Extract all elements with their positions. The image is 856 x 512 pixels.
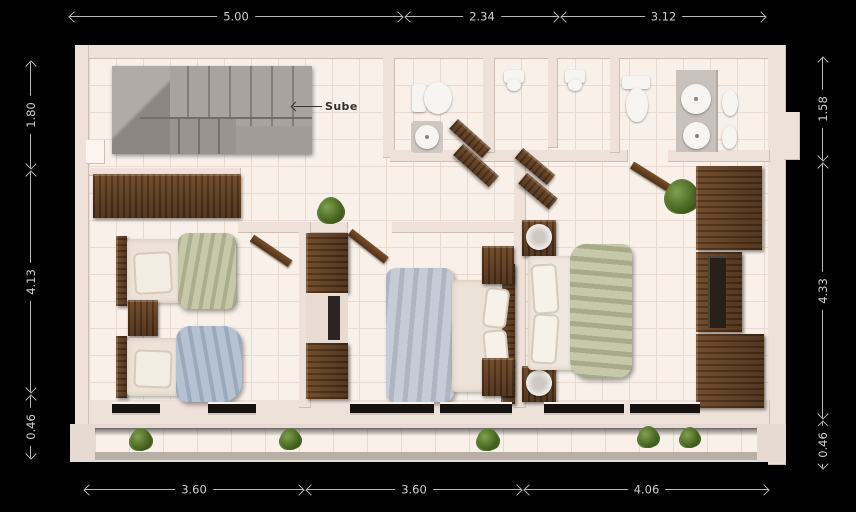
- blanket-twin-1: [178, 233, 236, 309]
- plant-balcony-3: [477, 429, 499, 451]
- plant-hallway: [318, 198, 344, 224]
- blanket-twin-2: [176, 326, 242, 402]
- stairs-arrow-icon: [294, 106, 322, 107]
- toilet-bowl: [424, 82, 452, 114]
- wall-bath-part-1: [483, 58, 495, 153]
- wall-right-jog: [784, 112, 800, 160]
- blanket-master: [570, 244, 632, 378]
- window-bed3-b: [630, 402, 700, 415]
- plant-balcony-4: [638, 427, 659, 448]
- pillow-master-2: [530, 313, 559, 365]
- staircase: [112, 66, 312, 154]
- wall-bath-part-2: [548, 58, 558, 148]
- plant-balcony-5: [680, 428, 700, 448]
- dim-bottom-1: 3.60: [85, 489, 303, 490]
- dim-right-2: 4.33: [822, 164, 823, 418]
- dim-right-1: 1.58: [822, 58, 823, 160]
- dim-label: 3.12: [645, 9, 683, 23]
- sink-drain: [425, 135, 429, 139]
- vanity-drain-2: [695, 134, 699, 138]
- headboard-twin-2: [116, 336, 127, 398]
- dim-label: 4.06: [628, 482, 666, 496]
- pillow-master-1: [530, 263, 559, 315]
- wall-stair-right: [383, 58, 395, 158]
- dim-label: 3.60: [175, 482, 213, 496]
- wardrobe-mid-recess: [306, 293, 348, 343]
- stairs-direction-label: Sube: [325, 100, 358, 113]
- stair-landing: [112, 66, 170, 154]
- wall-basin-2: [722, 126, 737, 149]
- vanity-drain-1: [694, 97, 698, 101]
- dim-bottom-3: 4.06: [525, 489, 768, 490]
- duvet-mid-bed: [386, 268, 454, 402]
- wall-right: [768, 45, 786, 465]
- pillow-twin-2: [133, 349, 172, 388]
- dim-label: 0.46: [24, 408, 38, 446]
- stall-basin-2: [568, 79, 582, 91]
- wall-top: [75, 45, 785, 59]
- dim-left-3: 0.46: [30, 396, 31, 458]
- dim-top-3: 3.12: [562, 16, 765, 17]
- dim-label: 4.13: [24, 263, 38, 301]
- window-bed2-b: [440, 402, 512, 415]
- wardrobe-mid-bottom: [306, 343, 348, 399]
- dim-label: 3.60: [395, 482, 433, 496]
- stair-divider: [140, 117, 312, 119]
- tv-slot-master: [708, 256, 726, 328]
- dim-top-2: 2.34: [406, 16, 558, 17]
- plant-balcony-2: [280, 429, 301, 450]
- toilet-bowl-3: [626, 88, 648, 122]
- nightstand-mid-top: [482, 246, 514, 284]
- dim-label: 4.33: [816, 272, 830, 310]
- window-bed1-a: [112, 402, 160, 415]
- dim-left-2: 4.13: [30, 172, 31, 392]
- dim-label: 2.34: [463, 9, 501, 23]
- dim-label: 1.58: [816, 90, 830, 128]
- lamp-master-top: [526, 224, 552, 250]
- tv-slot-mid: [328, 296, 340, 340]
- plant-balcony-1: [130, 429, 152, 451]
- wall-bath-part-3: [610, 58, 620, 153]
- window-bed3-a: [544, 402, 624, 415]
- wall-left: [75, 45, 89, 460]
- dim-right-3: 0.46: [822, 422, 823, 468]
- dim-bottom-2: 3.60: [307, 489, 521, 490]
- wall-mid-top-b: [392, 222, 516, 233]
- dim-label: 1.80: [24, 96, 38, 134]
- floor-plan-canvas: 5.00 2.34 3.12 3.60 3.60 4.06 1.80 4.13 …: [0, 0, 856, 512]
- balcony-ledge: [95, 452, 757, 460]
- wardrobe-bed1: [93, 174, 241, 218]
- lamp-master-bottom: [526, 370, 552, 396]
- plant-master: [665, 180, 699, 214]
- pillow-twin-1: [133, 251, 173, 295]
- headboard-twin-1: [116, 236, 127, 306]
- dim-top-1: 5.00: [70, 16, 402, 17]
- wall-basin-1: [722, 90, 738, 116]
- wall-niche: [86, 140, 105, 164]
- wardrobe-master-bottom: [696, 334, 764, 408]
- window-bed2-a: [350, 402, 434, 415]
- nightstand-bed1: [128, 300, 158, 336]
- stall-basin-1: [507, 79, 521, 91]
- wardrobe-master-top: [696, 166, 762, 250]
- wardrobe-mid-top: [306, 233, 348, 293]
- pillow-mid-1: [482, 287, 511, 330]
- dim-left-1: 1.80: [30, 62, 31, 168]
- nightstand-mid-bottom: [482, 358, 514, 396]
- dim-label: 5.00: [217, 9, 255, 23]
- window-bed1-b: [208, 402, 256, 415]
- dim-label: 0.46: [816, 426, 830, 464]
